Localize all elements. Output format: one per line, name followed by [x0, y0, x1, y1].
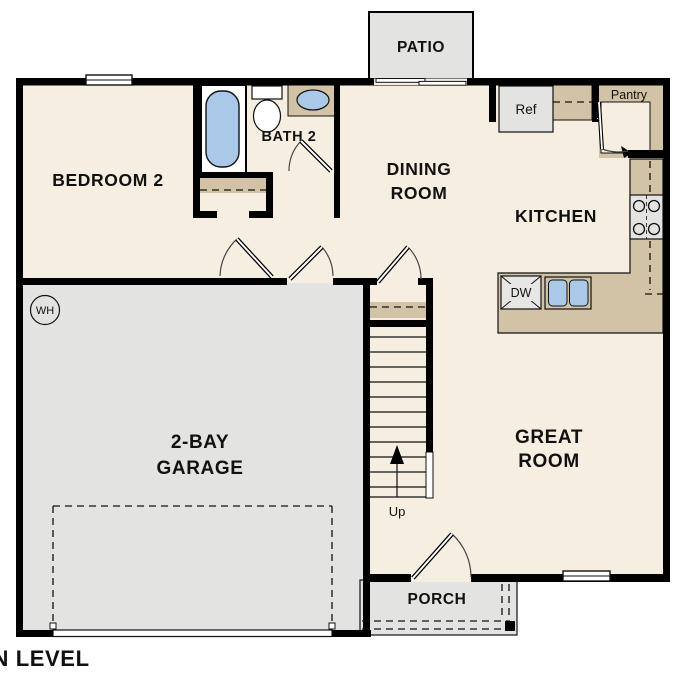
patio-label: PATIO	[397, 39, 445, 56]
toilet	[252, 86, 282, 132]
stairs-up-label: Up	[389, 504, 406, 519]
plan-title: MAIN LEVEL	[0, 646, 90, 671]
porch-column	[505, 621, 515, 631]
dishwasher-label: DW	[511, 286, 532, 300]
dining-label-line2: ROOM	[391, 183, 448, 203]
porch-label: PORCH	[408, 591, 467, 608]
great-room-label-line2: ROOM	[518, 451, 580, 472]
dining-label-line1: DINING	[387, 159, 452, 179]
stove	[630, 195, 663, 239]
garage-label-line1: 2-BAY	[171, 432, 229, 453]
floor-plan-drawing: BEDROOM 2 BATH 2 DINING ROOM KITCHEN GRE…	[0, 0, 687, 687]
bedroom2-label: BEDROOM 2	[52, 170, 163, 190]
bathtub	[206, 91, 239, 167]
refrigerator-label: Ref	[515, 102, 536, 117]
kitchen-sink	[545, 277, 591, 309]
water-heater-label: WH	[36, 305, 54, 317]
bath-sink	[297, 90, 329, 110]
great-room-label-line1: GREAT	[515, 427, 583, 448]
kitchen-label: KITCHEN	[515, 206, 597, 226]
garage-label-line2: GARAGE	[157, 458, 244, 479]
floor-plan: BEDROOM 2 BATH 2 DINING ROOM KITCHEN GRE…	[0, 0, 687, 687]
bath2-label: BATH 2	[262, 129, 317, 145]
stair-rail	[426, 452, 433, 498]
patio-sliding-door	[374, 79, 467, 86]
pantry-label: Pantry	[611, 88, 648, 102]
